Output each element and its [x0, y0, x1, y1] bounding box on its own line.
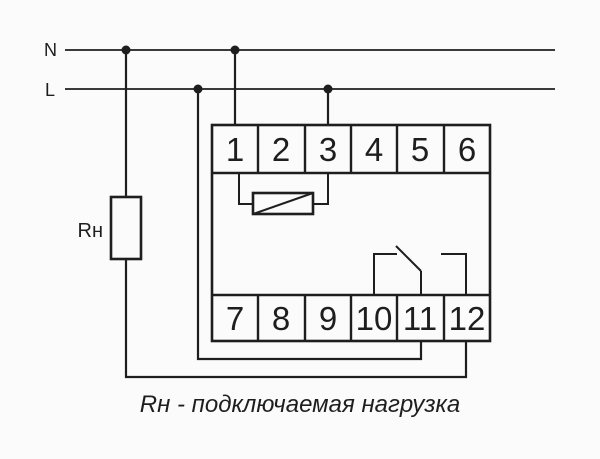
- junction-dot: [231, 46, 240, 55]
- terminal-label-12: 12: [449, 300, 486, 337]
- junction-dot: [324, 85, 333, 94]
- junction-dot: [122, 46, 131, 55]
- terminal-label-7: 7: [226, 300, 244, 337]
- wiring-diagram: N L Rн: [0, 0, 600, 459]
- terminal-label-2: 2: [272, 131, 290, 168]
- diagram-caption: Rн - подключаемая нагрузка: [140, 391, 460, 418]
- terminal-label-4: 4: [365, 131, 383, 168]
- junction-dot: [194, 85, 203, 94]
- schematic-canvas: N L Rн: [0, 0, 600, 459]
- terminal-label-9: 9: [319, 300, 337, 337]
- neutral-rail-label: N: [44, 40, 57, 60]
- terminal-label-6: 6: [458, 131, 476, 168]
- terminal-label-11: 11: [403, 300, 437, 337]
- load-resistor-label: Rн: [78, 220, 104, 242]
- terminal-label-1: 1: [226, 131, 244, 168]
- terminal-label-3: 3: [319, 131, 337, 168]
- terminal-label-8: 8: [272, 300, 290, 337]
- terminal-label-5: 5: [411, 131, 429, 168]
- terminal-label-10: 10: [356, 300, 393, 337]
- phase-rail-label: L: [45, 80, 55, 100]
